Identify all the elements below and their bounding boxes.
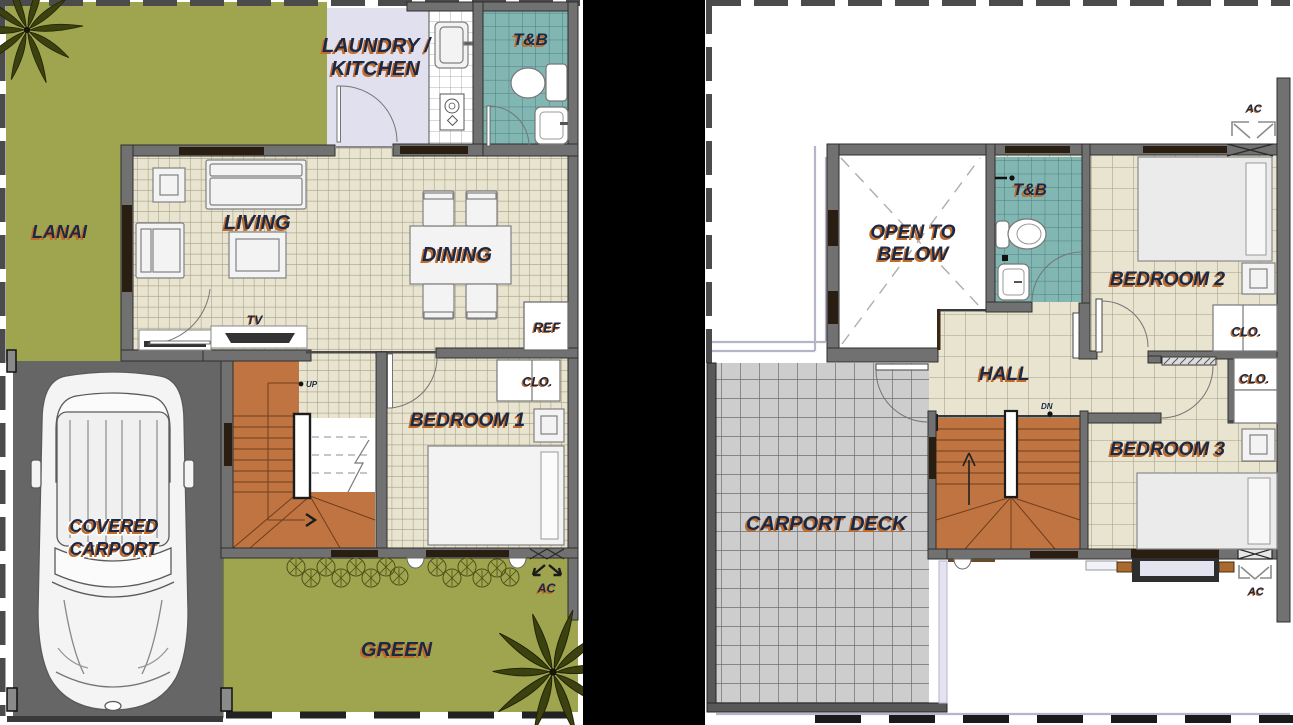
svg-text:TV: TV <box>247 313 263 327</box>
svg-text:CARPORT DECK: CARPORT DECK <box>746 513 908 535</box>
svg-text:REF: REF <box>534 320 562 335</box>
svg-text:AC: AC <box>1247 586 1265 598</box>
svg-text:AC: AC <box>537 582 557 596</box>
svg-text:UP: UP <box>306 380 318 389</box>
svg-text:CLO.: CLO. <box>1232 325 1262 339</box>
svg-text:COVERED: COVERED <box>69 516 158 536</box>
svg-text:DINING: DINING <box>422 244 492 266</box>
svg-text:BELOW: BELOW <box>878 244 951 265</box>
svg-text:BEDROOM 3: BEDROOM 3 <box>1110 439 1226 460</box>
svg-text:GREEN: GREEN <box>361 639 433 661</box>
svg-text:CLO.: CLO. <box>1240 372 1270 386</box>
svg-text:BEDROOM 2: BEDROOM 2 <box>1110 269 1226 290</box>
svg-text:OPEN TO: OPEN TO <box>870 222 955 243</box>
svg-text:LIVING: LIVING <box>224 212 291 234</box>
svg-text:LANAI: LANAI <box>32 222 88 242</box>
svg-text:DN: DN <box>1041 402 1053 411</box>
svg-text:KITCHEN: KITCHEN <box>331 58 420 80</box>
svg-text:BEDROOM 1: BEDROOM 1 <box>410 410 525 431</box>
svg-text:T&B: T&B <box>1013 181 1047 199</box>
svg-text:CARPORT: CARPORT <box>70 539 161 559</box>
svg-text:T&B: T&B <box>513 30 548 49</box>
svg-text:HALL: HALL <box>979 364 1030 385</box>
svg-text:CLO.: CLO. <box>523 375 553 389</box>
svg-text:LAUNDRY /: LAUNDRY / <box>322 35 433 57</box>
svg-text:AC: AC <box>1245 103 1263 115</box>
